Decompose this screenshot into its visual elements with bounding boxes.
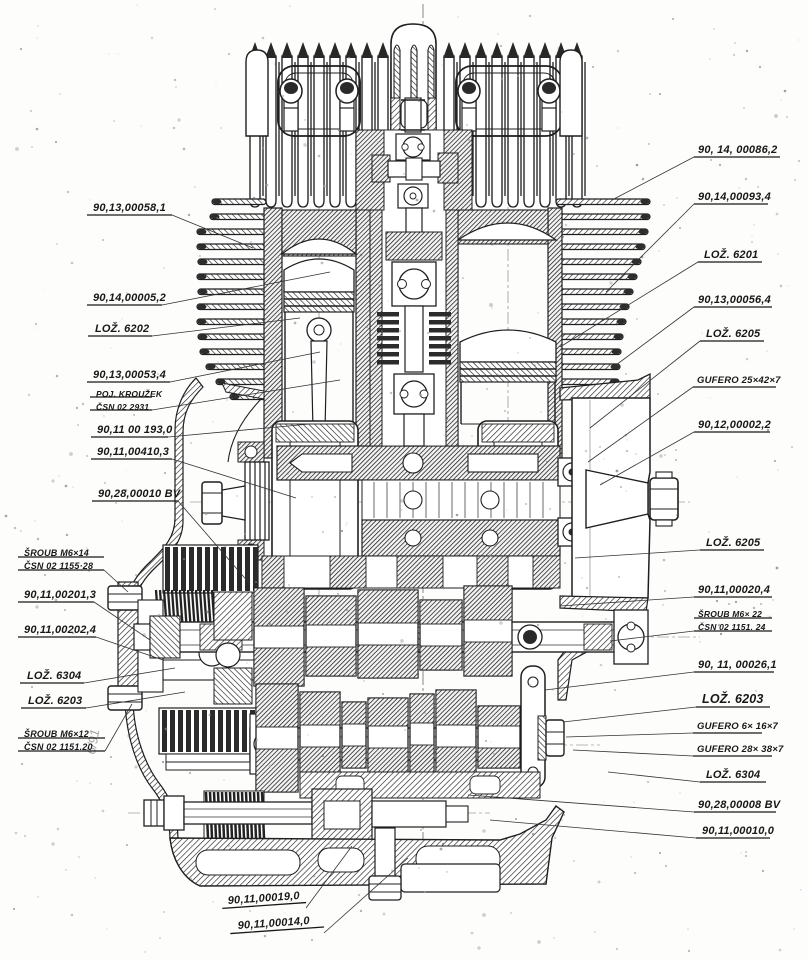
svg-text:90, 11, 00026,1: 90, 11, 00026,1 <box>698 659 777 671</box>
svg-text:90,28,00008 BV: 90,28,00008 BV <box>698 799 782 811</box>
svg-text:90,11,00202,4: 90,11,00202,4 <box>24 624 96 636</box>
svg-text:90,11,00020,4: 90,11,00020,4 <box>698 584 770 596</box>
svg-text:90, 14, 00086,2: 90, 14, 00086,2 <box>698 144 777 156</box>
svg-text:LOŽ. 6203: LOŽ. 6203 <box>28 694 82 707</box>
svg-text:GUFERO 25×42×7: GUFERO 25×42×7 <box>697 375 781 386</box>
svg-text:90,11,00201,3: 90,11,00201,3 <box>24 589 96 601</box>
svg-text:90,13,00058,1: 90,13,00058,1 <box>93 202 166 214</box>
svg-text:90,11,00410,3: 90,11,00410,3 <box>97 446 169 458</box>
svg-text:90,12,00002,2: 90,12,00002,2 <box>698 419 771 431</box>
svg-text:90,13,00056,4: 90,13,00056,4 <box>698 294 771 306</box>
svg-text:90,13,00053,4: 90,13,00053,4 <box>93 369 166 381</box>
svg-text:LOŽ. 6203: LOŽ. 6203 <box>702 691 764 706</box>
svg-text:LOŽ. 6202: LOŽ. 6202 <box>95 322 149 335</box>
svg-text:LOŽ. 6304: LOŽ. 6304 <box>706 768 760 781</box>
svg-text:90,28,00010 BV: 90,28,00010 BV <box>98 488 182 500</box>
svg-text:LOŽ. 6304: LOŽ. 6304 <box>27 669 81 682</box>
svg-text:GUFERO 6× 16×7: GUFERO 6× 16×7 <box>697 721 778 732</box>
svg-text:90,11 00 193,0: 90,11 00 193,0 <box>97 424 173 436</box>
svg-text:GUFERO 28× 38×7: GUFERO 28× 38×7 <box>697 744 784 755</box>
svg-text:90,11,00010,0: 90,11,00010,0 <box>702 825 775 837</box>
svg-text:90,14,00005,2: 90,14,00005,2 <box>93 292 166 304</box>
svg-text:90,14,00093,4: 90,14,00093,4 <box>698 191 771 203</box>
svg-text:LOŽ. 6205: LOŽ. 6205 <box>706 536 761 549</box>
svg-text:LOŽ. 6201: LOŽ. 6201 <box>704 248 758 261</box>
svg-text:LOŽ. 6205: LOŽ. 6205 <box>706 327 761 340</box>
